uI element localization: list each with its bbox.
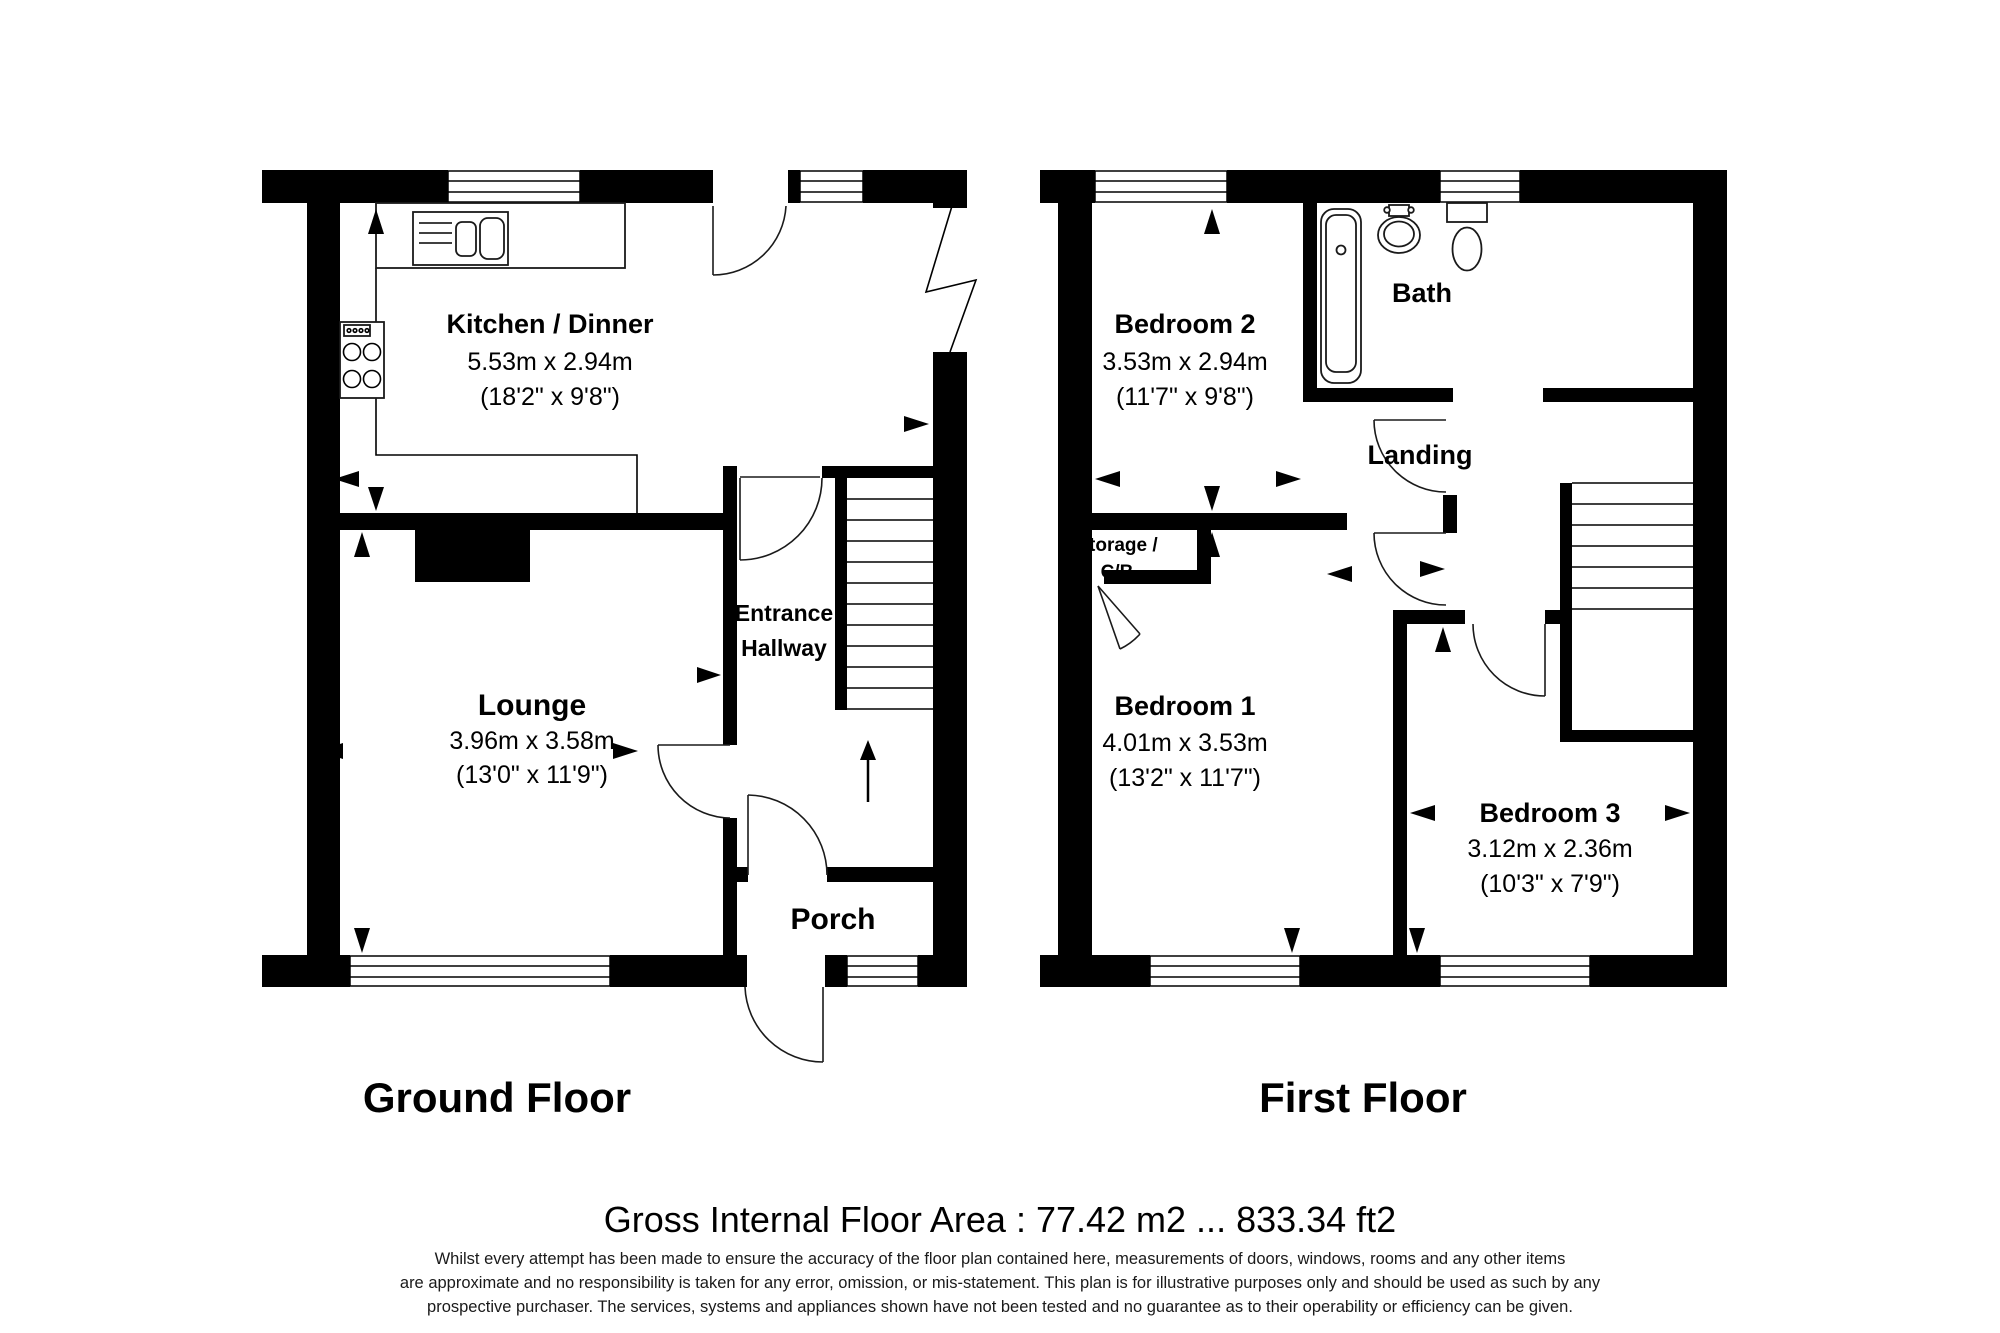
bath-window-icon — [1440, 171, 1520, 202]
bedroom3-label: Bedroom 3 — [1479, 798, 1620, 828]
bedroom1-dim-metric: 4.01m x 3.53m — [1102, 729, 1267, 757]
stove-icon — [340, 322, 384, 398]
bedroom3-dim-imperial: (10'3" x 7'9") — [1480, 870, 1620, 898]
kitchen-dim-imperial: (18'2" x 9'8") — [480, 383, 620, 411]
bedroom3-window-icon — [1440, 956, 1590, 986]
first-floor-plan: Bedroom 2 3.53m x 2.94m (11'7" x 9'8") B… — [1040, 170, 1727, 987]
bath-label: Bath — [1392, 278, 1452, 308]
hallway-label-line2: Hallway — [741, 635, 827, 661]
landing-label: Landing — [1368, 440, 1473, 470]
kitchen-window2-icon — [800, 171, 863, 202]
first-floor-stairs — [1572, 483, 1693, 609]
basin-icon — [1378, 205, 1420, 253]
lounge-dim-imperial: (13'0" x 11'9") — [456, 761, 608, 789]
lounge-label: Lounge — [478, 689, 586, 722]
disclaimer-line-1: Whilst every attempt has been made to en… — [435, 1250, 1566, 1268]
porch-window-icon — [847, 956, 918, 986]
bedroom2-dim-imperial: (11'7" x 9'8") — [1116, 383, 1254, 411]
bedroom1-window-icon — [1150, 956, 1300, 986]
first-floor-doors — [1098, 420, 1545, 696]
storage-door-icon — [1098, 586, 1140, 649]
bedroom2-dim-metric: 3.53m x 2.94m — [1102, 348, 1267, 376]
ground-floor-plan: Kitchen / Dinner 5.53m x 2.94m (18'2" x … — [262, 170, 976, 1062]
front-door-icon — [745, 987, 823, 1062]
wall-break-icon — [926, 206, 976, 352]
kitchen-sink-icon — [413, 212, 508, 265]
lounge-window-icon — [350, 956, 610, 986]
bathtub-icon — [1321, 209, 1361, 383]
kitchen-window-icon — [448, 171, 580, 202]
porch-label: Porch — [790, 903, 875, 936]
kitchen-label: Kitchen / Dinner — [446, 309, 654, 339]
porch-inner-door-icon — [748, 795, 827, 875]
bedroom3-dim-metric: 3.12m x 2.36m — [1467, 835, 1632, 863]
floorplan-canvas: Kitchen / Dinner 5.53m x 2.94m (18'2" x … — [0, 0, 2000, 1333]
storage-label-line1: Storage / — [1076, 535, 1158, 556]
stairs-up-arrow-icon — [860, 740, 876, 802]
ground-floor-stairs — [847, 499, 933, 802]
bedroom1-label: Bedroom 1 — [1114, 691, 1255, 721]
kitchen-dim-metric: 5.53m x 2.94m — [467, 348, 632, 376]
bedroom2-window-icon — [1095, 171, 1227, 202]
hallway-label-line1: Entrance — [735, 600, 833, 626]
bedroom3-door-icon — [1473, 624, 1545, 696]
storage-label-line2: C/B — [1101, 562, 1134, 583]
ground-floor-interior-walls — [340, 466, 933, 957]
bedroom2-label: Bedroom 2 — [1114, 309, 1255, 339]
lounge-door-icon — [658, 745, 730, 818]
ground-floor-exterior-walls — [262, 170, 967, 987]
kitchen-back-door-icon — [713, 206, 786, 275]
gross-area-line: Gross Internal Floor Area : 77.42 m2 ...… — [604, 1199, 1396, 1240]
disclaimer-line-3: prospective purchaser. The services, sys… — [427, 1298, 1573, 1316]
toilet-icon — [1447, 203, 1487, 271]
floorplan-page: Kitchen / Dinner 5.53m x 2.94m (18'2" x … — [0, 0, 2000, 1333]
first-floor-title: First Floor — [1259, 1074, 1467, 1121]
ground-floor-labels: Kitchen / Dinner 5.53m x 2.94m (18'2" x … — [446, 309, 875, 936]
bedroom1-dim-imperial: (13'2" x 11'7") — [1109, 764, 1261, 792]
disclaimer-line-2: are approximate and no responsibility is… — [400, 1274, 1601, 1292]
footer: Ground Floor First Floor Gross Internal … — [363, 1074, 1601, 1316]
ground-floor-title: Ground Floor — [363, 1074, 631, 1121]
kitchen-hall-door-icon — [740, 477, 822, 560]
lounge-dim-metric: 3.96m x 3.58m — [449, 727, 614, 755]
